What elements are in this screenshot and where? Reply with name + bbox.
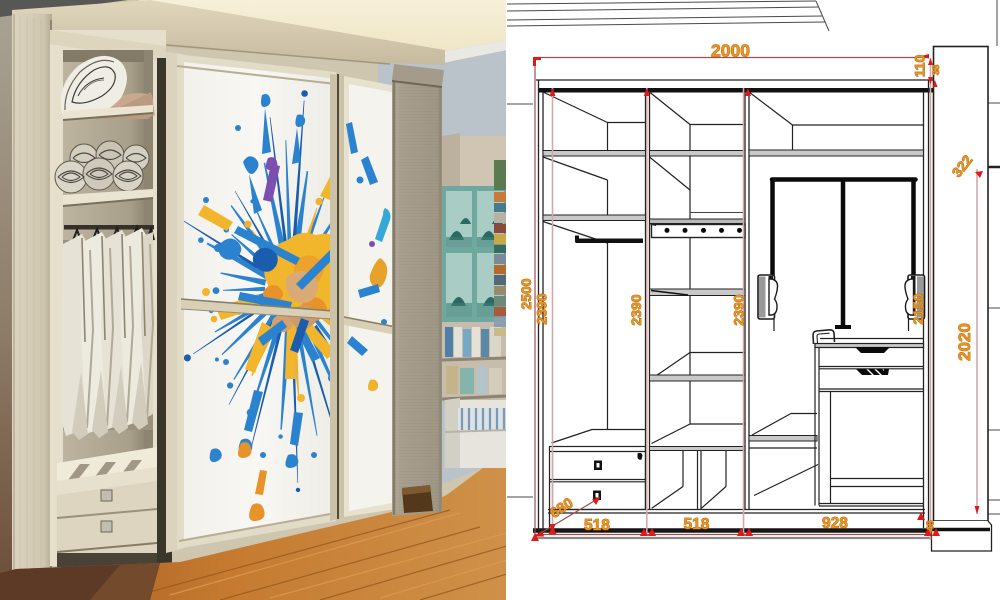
svg-text:2150: 2150	[910, 293, 926, 324]
svg-text:110: 110	[912, 54, 928, 77]
svg-text:518: 518	[584, 517, 610, 534]
svg-text:518: 518	[684, 516, 710, 533]
svg-text:2390: 2390	[628, 294, 644, 325]
svg-text:2500: 2500	[518, 278, 534, 309]
svg-text:2390: 2390	[731, 294, 747, 325]
svg-text:2000: 2000	[711, 41, 750, 61]
svg-text:2020: 2020	[955, 323, 974, 361]
svg-text:928: 928	[822, 515, 848, 532]
svg-text:48: 48	[926, 520, 937, 532]
svg-text:2390: 2390	[534, 293, 550, 324]
svg-text:38: 38	[931, 65, 942, 76]
